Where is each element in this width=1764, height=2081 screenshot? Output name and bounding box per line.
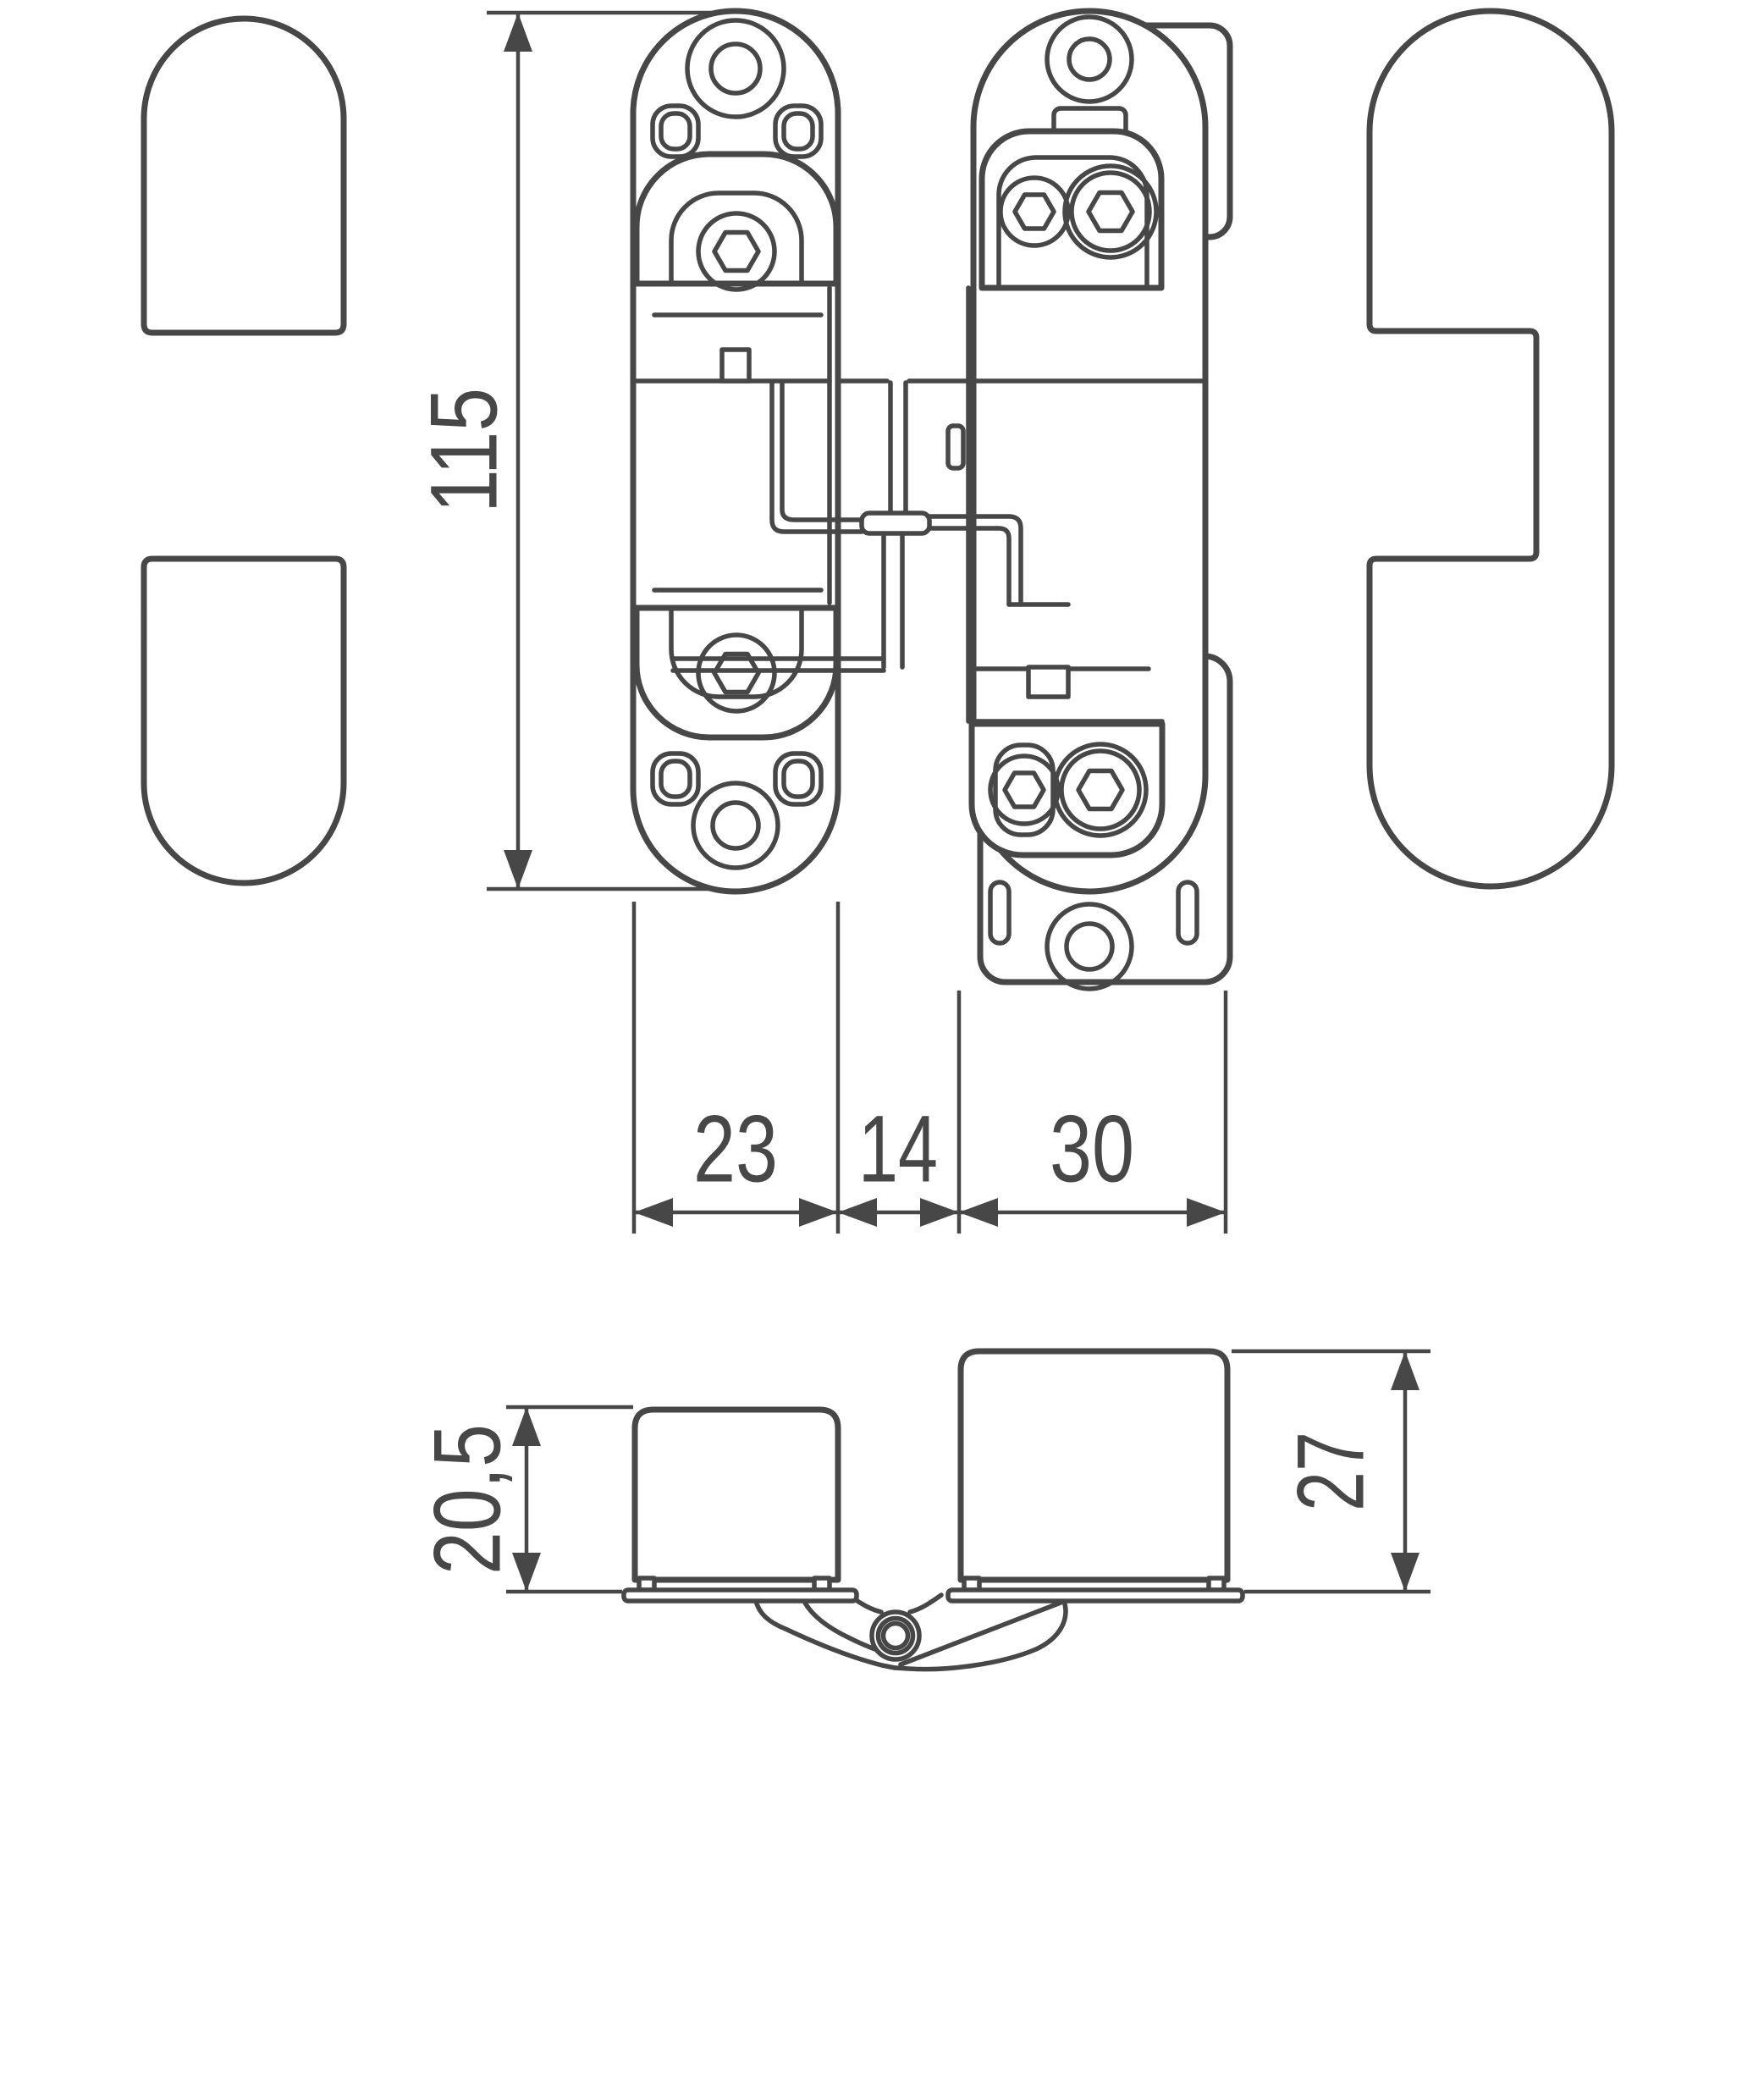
frame-cover-cap-outline	[1370, 11, 1612, 886]
dimension-frame-cup-depth: 27	[1232, 1351, 1430, 1592]
arrowhead-up	[1391, 1351, 1419, 1390]
arrowhead-right	[1187, 1198, 1226, 1227]
cover-cap-bottom-outline	[144, 559, 344, 883]
bracket-top-outer	[637, 154, 836, 284]
cover-cap-top-outline	[144, 19, 344, 333]
dimension-label-23: 23	[693, 1096, 778, 1202]
cover-cap-bottom	[144, 559, 344, 883]
arrowhead-up	[504, 13, 532, 52]
drawing-canvas: 115	[0, 0, 1764, 2081]
dimension-label-14: 14	[858, 1096, 938, 1202]
dimension-label-27: 27	[1278, 1432, 1384, 1511]
center-link-platform	[862, 513, 929, 533]
alignment-tab	[1028, 667, 1068, 697]
frame-leaf-plate	[948, 11, 1230, 989]
frame-cup-outline	[961, 1351, 1227, 1580]
arrowhead-left	[634, 1198, 673, 1227]
front-view: 115	[144, 11, 1612, 1234]
arrowhead-down	[1391, 1553, 1419, 1592]
arrowhead-down	[504, 850, 532, 889]
hinge-technical-drawing: 115	[0, 0, 1764, 2081]
knuckle-top-edge	[910, 1595, 941, 1612]
alignment-tab	[948, 426, 963, 468]
dimension-label-115: 115	[411, 388, 517, 513]
mounting-flange	[624, 1590, 857, 1601]
section-view: 20,5 27	[415, 1351, 1431, 1670]
dimension-label-30: 30	[1050, 1096, 1134, 1202]
door-cup-outline	[635, 1410, 838, 1580]
frame-side-cover-cap	[1370, 11, 1612, 886]
door-leaf-plate	[633, 11, 838, 891]
mounting-flange	[948, 1590, 1243, 1601]
arrowhead-left	[959, 1198, 998, 1227]
arrowhead-right	[799, 1198, 838, 1227]
arrowhead-right	[920, 1198, 959, 1227]
alignment-tab	[722, 350, 749, 381]
cover-cap-top	[144, 19, 344, 333]
dimension-door-cup-depth: 20,5	[415, 1407, 634, 1592]
arrowhead-left	[838, 1198, 877, 1227]
pivot-knuckle	[756, 1595, 1066, 1670]
knuckle-strut	[901, 1603, 1061, 1664]
bracket-bottom-outer	[972, 724, 1162, 855]
door-cup	[624, 1410, 857, 1601]
frame-cup	[948, 1351, 1243, 1601]
dimension-label-20-5: 20,5	[415, 1424, 521, 1575]
